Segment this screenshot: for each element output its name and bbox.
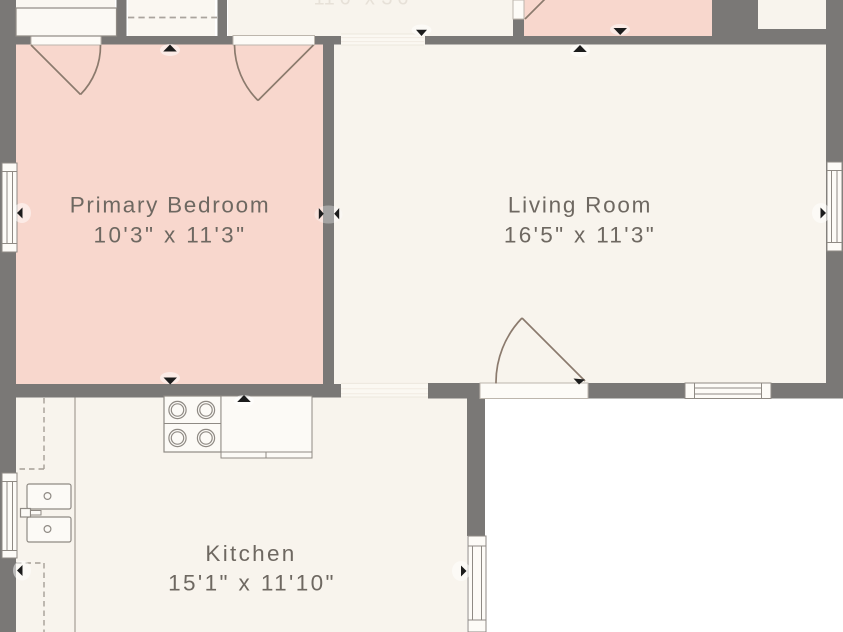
svg-text:Primary Bedroom: Primary Bedroom: [70, 193, 271, 218]
svg-text:10'3" x 11'3": 10'3" x 11'3": [94, 222, 247, 247]
svg-text:Kitchen: Kitchen: [205, 541, 296, 566]
svg-text:Living Room: Living Room: [508, 193, 652, 218]
svg-text:16'5" x 11'3": 16'5" x 11'3": [504, 222, 656, 247]
svg-text:11'6" x 3'6": 11'6" x 3'6": [313, 0, 416, 10]
svg-text:15'1" x 11'10": 15'1" x 11'10": [168, 571, 336, 596]
